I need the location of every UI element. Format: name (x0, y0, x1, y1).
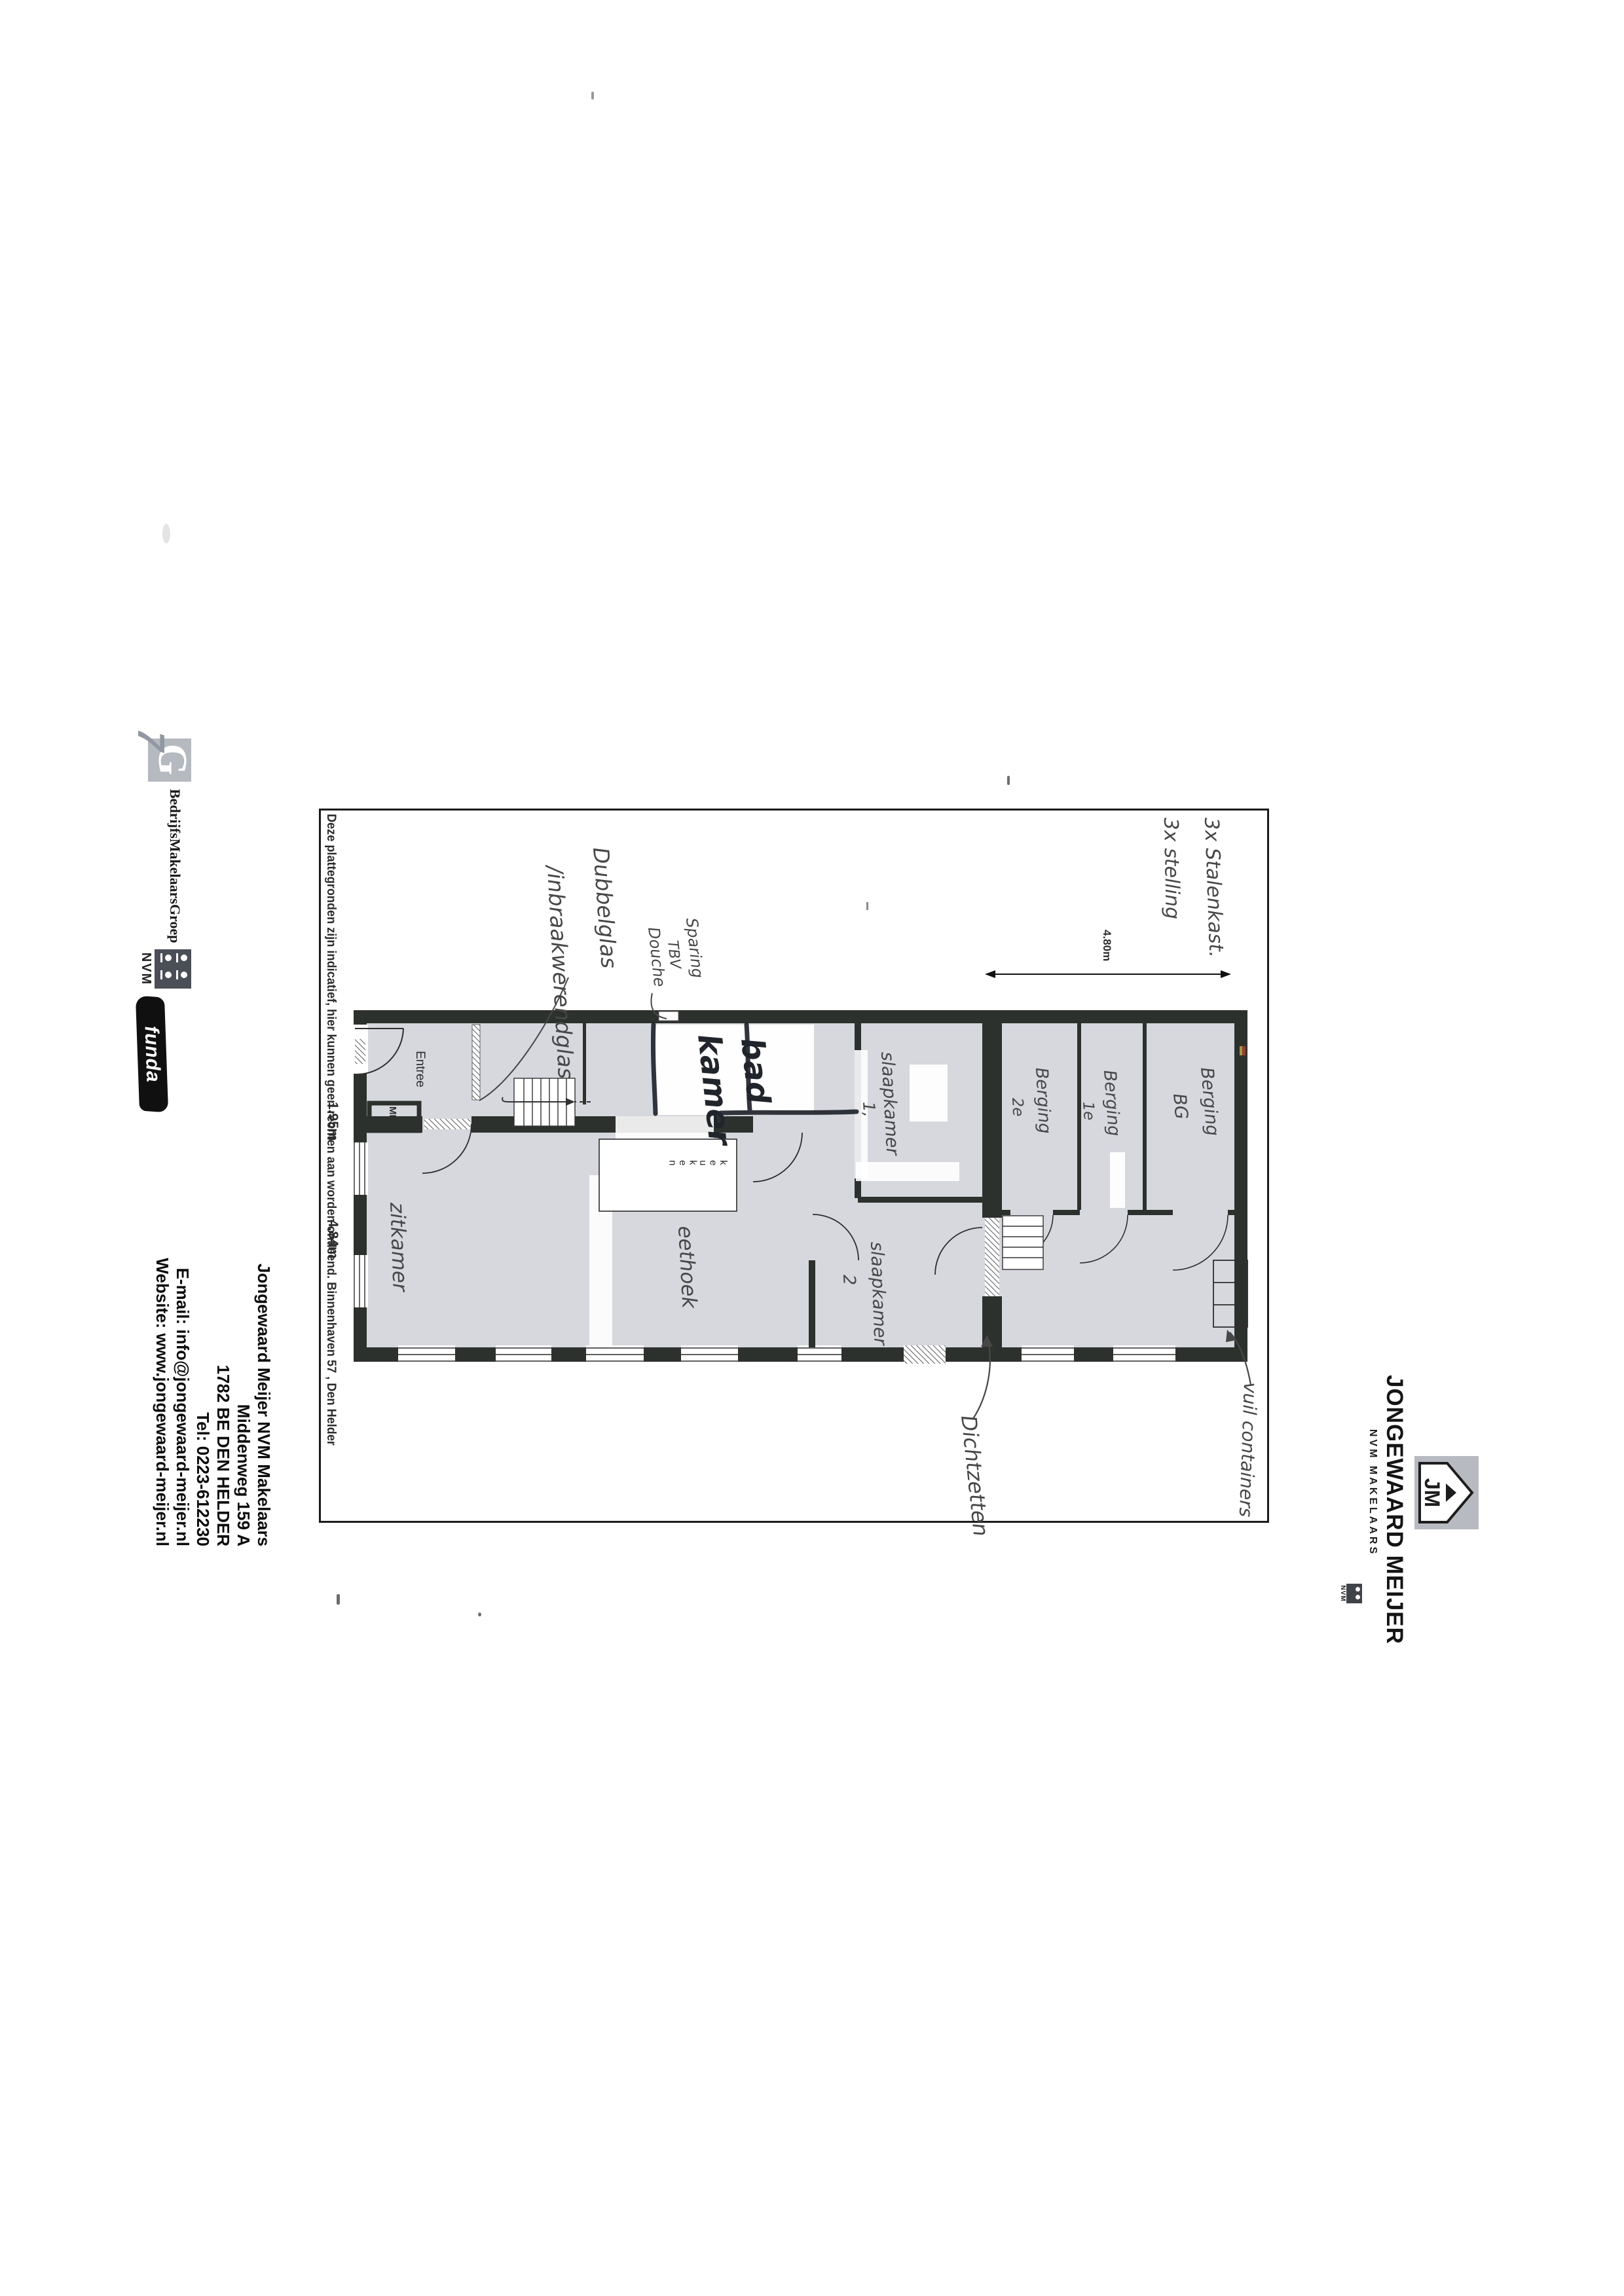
scan-speck-plan (866, 902, 868, 910)
dichtzetten-note: Dichtzetten (956, 1414, 993, 1537)
scan-speck (337, 1594, 340, 1605)
dim-b-label: 4.84m (325, 1220, 341, 1259)
dubbelglas-note: Dubbelglas (588, 847, 622, 970)
sparing-note: Sparing (682, 917, 707, 979)
brand-block: JM JONGEWAARD MEIJER NVM MAKELAARS NVM (1367, 1375, 1479, 1611)
office-phone: Tel: 0223-612230 (193, 1224, 213, 1546)
office-email: E-mail: info@jongewaard-meijer.nl (172, 1224, 193, 1546)
berging-bg-label2: BG (1169, 1093, 1191, 1120)
vuilcontainers-note: vuil containers (1235, 1382, 1261, 1518)
keuken-label: keuken (667, 1160, 729, 1165)
glass-partition (472, 1025, 480, 1100)
rotated-landscape-content: 4.80m Entree MK keuken Berging BG Bergin… (0, 0, 1624, 2296)
berging-2e-label2: 2e (1008, 1097, 1026, 1117)
floorplan-figure: 4.80m Entree MK keuken Berging BG Bergin… (319, 809, 1269, 1523)
bmg-logo: G 7 (148, 738, 191, 782)
stelling-note: 3x stelling (1159, 818, 1184, 920)
nvm-footer-logo: NVM (138, 947, 191, 991)
nvm-pictogram (155, 949, 191, 989)
keuken-counter (599, 1139, 737, 1211)
brand-subtitle: NVM MAKELAARS (1367, 1375, 1378, 1611)
nvm-small-pictogram (1346, 1584, 1362, 1603)
slaapkamer2-label2: 2 (839, 1274, 859, 1286)
badkamer-label: bad (733, 1036, 777, 1106)
office-street: Middenweg 159 A (233, 1224, 253, 1546)
stalenkast-note: 3x Stalenkast. (1200, 817, 1227, 958)
nvm-small-logo: NVM (1339, 1580, 1362, 1607)
eethoek-label: eethoek (673, 1226, 701, 1310)
office-name: Jongewaard Meijer NVM Makelaars (253, 1224, 274, 1546)
erased-area-berging (1110, 1152, 1125, 1208)
jm-monogram: JM (1420, 1478, 1444, 1507)
dimension-480 (985, 970, 1231, 978)
scan-smudge (162, 524, 170, 543)
divider-wall (982, 1023, 1002, 1347)
funda-label: funda (139, 1025, 164, 1083)
dimension-480-label: 4.80m (1101, 930, 1113, 961)
mk-label: MK (387, 1106, 398, 1121)
bottom-wall-openings (351, 1025, 368, 1307)
entree-label: Entree (413, 1051, 427, 1087)
berging-1e-label2: 1e (1079, 1101, 1098, 1121)
office-website: Website: www.jongewaard-meijer.nl (152, 1224, 172, 1546)
bmg-wordmark: BedrijfsMakelaarsGroep (166, 789, 183, 943)
scanned-document-page: 4.80m Entree MK keuken Berging BG Bergin… (0, 0, 1624, 2296)
scan-speck (478, 1613, 481, 1616)
scan-speck (1007, 776, 1010, 785)
slaapkamer1-label2: 1, (859, 1101, 879, 1118)
scan-artifact-color (1240, 1046, 1246, 1055)
sparing-note3: Douche (644, 926, 669, 988)
zitkamer-door-panel (424, 1119, 470, 1129)
sparing-notch (659, 1011, 678, 1021)
office-address-block: Jongewaard Meijer NVM Makelaars Middenwe… (152, 1224, 274, 1546)
funda-logo: funda (136, 996, 168, 1113)
back-stairs (1003, 1216, 1043, 1269)
dim-a-label: 1.95m (325, 1102, 341, 1141)
scan-speck (591, 92, 594, 100)
slaapkamer2-label: slaapkamer (866, 1241, 891, 1347)
nvm-small-label: NVM (1339, 1580, 1346, 1607)
nvm-footer-label: NVM (138, 947, 153, 991)
brand-title: JONGEWAARD MEIJER (1381, 1375, 1407, 1611)
office-city: 1782 BE DEN HELDER (213, 1224, 233, 1546)
berging-2e-label: Berging (1031, 1067, 1054, 1135)
zitkamer-label: zitkamer (385, 1201, 412, 1293)
jm-house-logo: JM (1414, 1456, 1479, 1529)
